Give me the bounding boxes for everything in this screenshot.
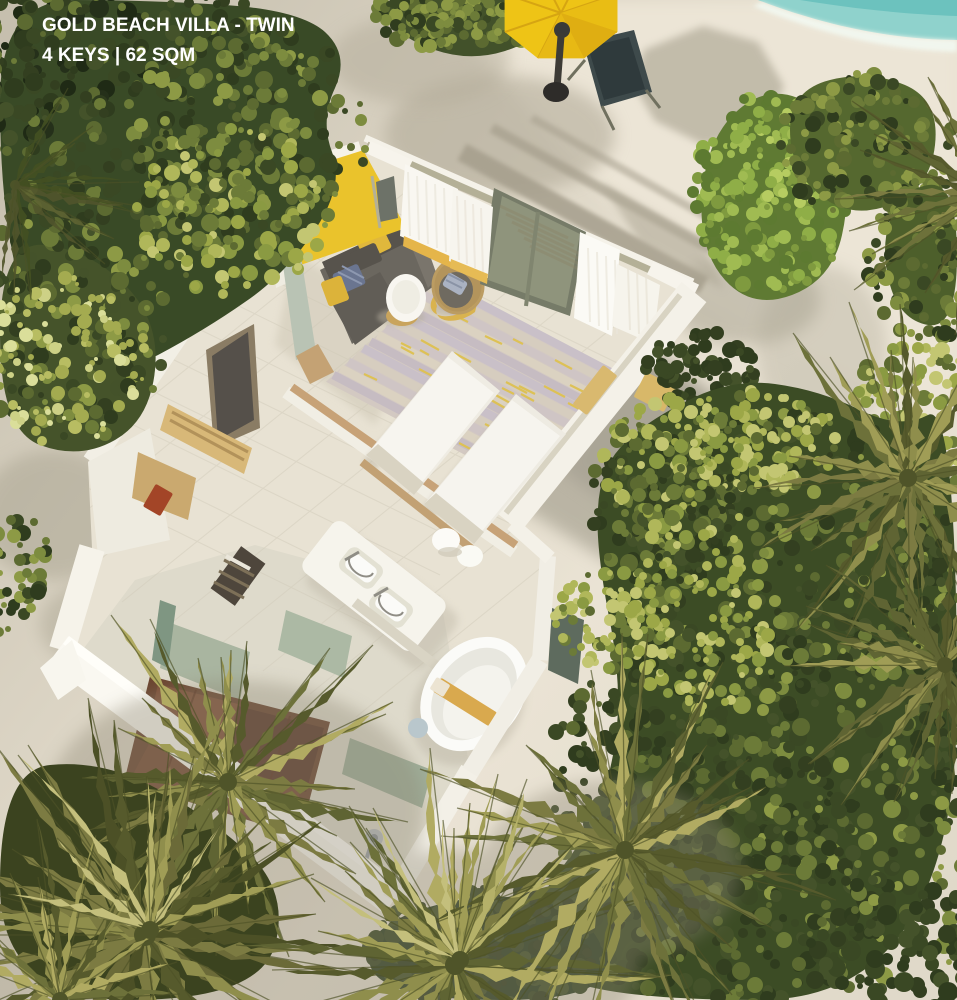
svg-text:GOLD BEACH VILLA - TWIN: GOLD BEACH VILLA - TWIN — [42, 15, 295, 36]
svg-text:4 KEYS | 62 SQM: 4 KEYS | 62 SQM — [42, 45, 195, 66]
